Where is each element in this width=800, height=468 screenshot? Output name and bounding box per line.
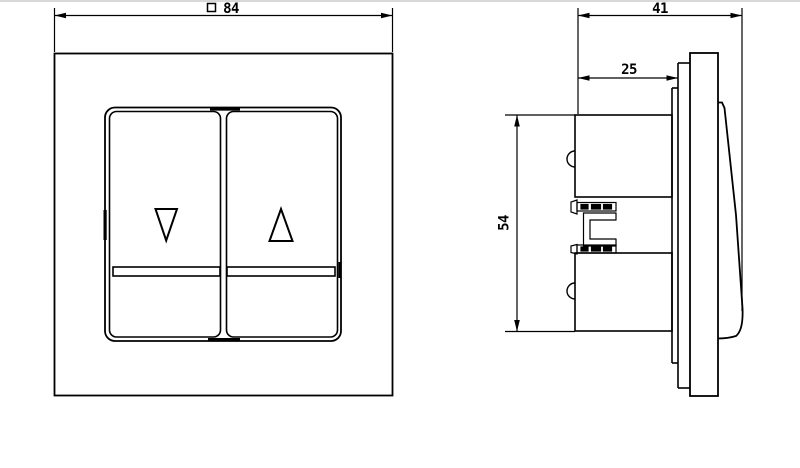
screw-bump-lower xyxy=(567,283,575,299)
insert-box-upper xyxy=(575,115,672,197)
arrow-down-icon xyxy=(156,209,178,241)
arrow-up-icon xyxy=(270,209,293,241)
rocker-button-up xyxy=(227,112,338,338)
front-view xyxy=(55,54,393,396)
arrowhead-right xyxy=(667,75,679,80)
insert-box-lower xyxy=(575,253,672,331)
dim-label-25: 25 xyxy=(621,62,637,78)
screw-bump-upper xyxy=(567,151,575,167)
frame-seam-marks xyxy=(105,109,340,340)
button-bar-left xyxy=(113,267,220,276)
dimension-insert-height: 54 xyxy=(497,115,576,332)
support-frame-layers xyxy=(672,63,690,388)
arrowhead-right xyxy=(381,13,393,18)
square-symbol-icon xyxy=(208,4,216,12)
dim-label-41: 41 xyxy=(652,1,668,17)
side-view xyxy=(567,53,743,396)
cover-plate-side xyxy=(690,53,718,396)
dimension-front-width: 84 xyxy=(55,1,393,52)
drawing-page: 84 41 25 xyxy=(0,0,800,468)
rocker-button-down xyxy=(110,112,221,338)
button-bar-right xyxy=(227,267,335,276)
dimensions: 84 41 25 xyxy=(55,1,743,332)
claw-clamp-detail xyxy=(571,200,616,254)
arrowhead-left xyxy=(578,75,590,80)
arrowhead-right xyxy=(731,13,743,18)
arrowhead-left xyxy=(55,13,67,18)
arrowhead-up xyxy=(514,115,520,127)
dim-label-54: 54 xyxy=(497,215,513,231)
dim-label-84: 84 xyxy=(223,1,239,17)
arrowhead-left xyxy=(578,13,590,18)
button-frame xyxy=(105,108,341,342)
arrowhead-down xyxy=(514,320,520,332)
rocker-profile-side xyxy=(718,103,743,339)
dimension-insert-depth: 25 xyxy=(578,62,678,81)
technical-drawing-svg: 84 41 25 xyxy=(0,0,800,468)
